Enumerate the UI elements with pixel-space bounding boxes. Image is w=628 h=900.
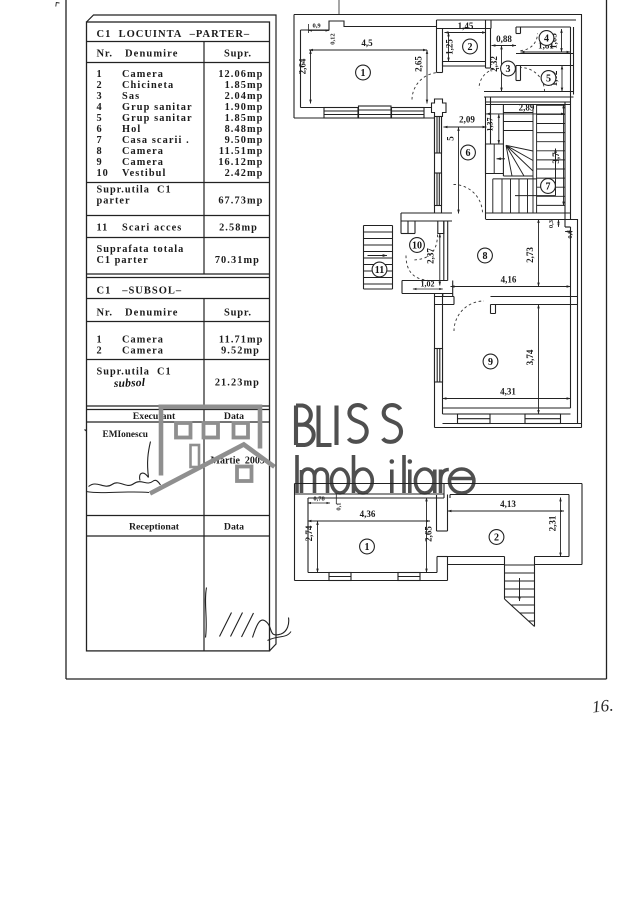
svg-text:2.42mp: 2.42mp (225, 168, 264, 179)
svg-text:3: 3 (506, 64, 511, 75)
svg-text:5: 5 (97, 113, 103, 124)
svg-text:Camera: Camera (122, 346, 164, 357)
svg-text:1: 1 (365, 542, 370, 553)
svg-text:4: 4 (544, 33, 549, 44)
svg-text:C1 parter: C1 parter (97, 255, 149, 266)
svg-text:Camera: Camera (122, 335, 164, 346)
svg-text:Denumire: Denumire (125, 49, 179, 60)
svg-text:5: 5 (546, 73, 551, 84)
svg-text:11.51mp: 11.51mp (219, 146, 264, 157)
svg-text:2,31: 2,31 (548, 515, 558, 531)
svg-text:2.04mp: 2.04mp (225, 91, 264, 102)
svg-text:Receptionat: Receptionat (129, 522, 180, 533)
svg-text:1: 1 (97, 335, 103, 346)
svg-text:2: 2 (97, 80, 103, 91)
svg-text:Nr.: Nr. (97, 308, 113, 319)
svg-text:70.31mp: 70.31mp (215, 255, 260, 266)
svg-text:1,45: 1,45 (458, 21, 474, 31)
svg-text:1,02: 1,02 (421, 280, 435, 289)
svg-text:C1 LOCUINTA –PARTER–: C1 LOCUINTA –PARTER– (97, 29, 251, 40)
svg-text:0,9: 0,9 (312, 23, 321, 30)
svg-text:9: 9 (488, 357, 493, 368)
svg-text:1: 1 (97, 69, 103, 80)
svg-text:Data: Data (224, 522, 244, 533)
svg-text:4,5: 4,5 (361, 38, 373, 48)
svg-text:Casa scarii .: Casa scarii . (122, 135, 190, 146)
svg-text:Supr.: Supr. (224, 308, 252, 319)
svg-text:0,3: 0,3 (548, 219, 555, 228)
svg-text:Camera: Camera (122, 146, 164, 157)
svg-text:3,74: 3,74 (525, 349, 535, 365)
svg-text:6: 6 (97, 124, 103, 135)
svg-text:2,65: 2,65 (414, 56, 424, 72)
svg-text:16.12mp: 16.12mp (218, 157, 263, 168)
svg-text:Camera: Camera (122, 69, 164, 80)
svg-text:2: 2 (97, 346, 103, 357)
svg-text:4: 4 (97, 102, 103, 113)
svg-text:16.: 16. (591, 695, 614, 716)
svg-text:11: 11 (375, 265, 384, 276)
svg-text:2: 2 (468, 42, 473, 53)
svg-text:21.23mp: 21.23mp (215, 378, 260, 389)
svg-text:9: 9 (97, 157, 103, 168)
svg-text:4,13: 4,13 (500, 499, 516, 509)
svg-text:1.85mp: 1.85mp (225, 113, 264, 124)
svg-text:Nr.: Nr. (97, 49, 113, 60)
svg-text:Supr.utila C1: Supr.utila C1 (97, 367, 172, 378)
svg-text:7: 7 (546, 181, 551, 192)
svg-text:subsol: subsol (113, 377, 146, 390)
svg-text:1.90mp: 1.90mp (225, 102, 264, 113)
svg-text:67.73mp: 67.73mp (218, 196, 263, 207)
svg-text:3,7: 3,7 (551, 152, 561, 164)
svg-text:2: 2 (494, 532, 499, 543)
svg-text:Camera: Camera (122, 157, 164, 168)
svg-text:Grup sanitar: Grup sanitar (122, 102, 193, 113)
svg-text:2,32: 2,32 (489, 56, 499, 72)
svg-text:7: 7 (97, 135, 103, 146)
svg-text:Hol: Hol (122, 124, 141, 135)
svg-text:2,74: 2,74 (304, 525, 314, 541)
svg-text:EMIonescu: EMIonescu (103, 430, 148, 440)
svg-text:Sas: Sas (122, 91, 140, 102)
svg-text:0,78: 0,78 (313, 496, 325, 503)
svg-text:10: 10 (97, 168, 109, 179)
svg-text:11.71mp: 11.71mp (219, 335, 264, 346)
svg-text:2.58mp: 2.58mp (219, 223, 258, 234)
svg-text:Denumire: Denumire (125, 308, 179, 319)
svg-text:Grup sanitar: Grup sanitar (122, 113, 193, 124)
svg-text:Vestibul: Vestibul (122, 168, 166, 179)
svg-text:Suprafata totala: Suprafata totala (97, 244, 185, 255)
svg-text:4,36: 4,36 (360, 509, 376, 519)
svg-text:parter: parter (97, 196, 131, 207)
svg-text:1.85mp: 1.85mp (225, 80, 264, 91)
svg-text:2,73: 2,73 (525, 247, 535, 263)
svg-text:Scari acces: Scari acces (122, 223, 182, 234)
svg-text:2,89: 2,89 (519, 103, 535, 113)
svg-text:1,25: 1,25 (445, 39, 455, 55)
svg-text:9.50mp: 9.50mp (225, 135, 264, 146)
svg-text:Executant: Executant (133, 411, 176, 422)
svg-text:0,12: 0,12 (330, 33, 337, 44)
svg-text:2,37: 2,37 (426, 248, 436, 264)
svg-text:Supr.utila C1: Supr.utila C1 (97, 185, 172, 196)
svg-text:8: 8 (97, 146, 103, 157)
svg-text:0,1: 0,1 (336, 502, 343, 510)
svg-text:11: 11 (97, 223, 109, 234)
svg-text:4,16: 4,16 (501, 275, 517, 285)
svg-text:3: 3 (97, 91, 103, 102)
svg-text:10: 10 (412, 240, 422, 251)
svg-text:5: 5 (446, 136, 456, 141)
svg-text:1,37: 1,37 (486, 118, 495, 132)
svg-text:6: 6 (466, 148, 471, 159)
svg-text:Chicineta: Chicineta (122, 80, 174, 91)
svg-text:0,88: 0,88 (496, 34, 512, 44)
svg-text:C1 –SUBSOL–: C1 –SUBSOL– (97, 286, 183, 297)
svg-text:Data: Data (224, 411, 244, 422)
svg-text:1: 1 (361, 68, 366, 79)
svg-text:4,31: 4,31 (500, 387, 516, 397)
svg-text:8.48mp: 8.48mp (225, 124, 264, 135)
svg-text:12.06mp: 12.06mp (218, 69, 263, 80)
svg-text:Supr.: Supr. (224, 49, 252, 60)
svg-text:2,64: 2,64 (298, 58, 308, 74)
svg-text:2,09: 2,09 (459, 115, 475, 125)
svg-text:9.52mp: 9.52mp (221, 346, 260, 357)
svg-text:2,65: 2,65 (424, 526, 434, 542)
svg-text:8: 8 (483, 251, 488, 262)
